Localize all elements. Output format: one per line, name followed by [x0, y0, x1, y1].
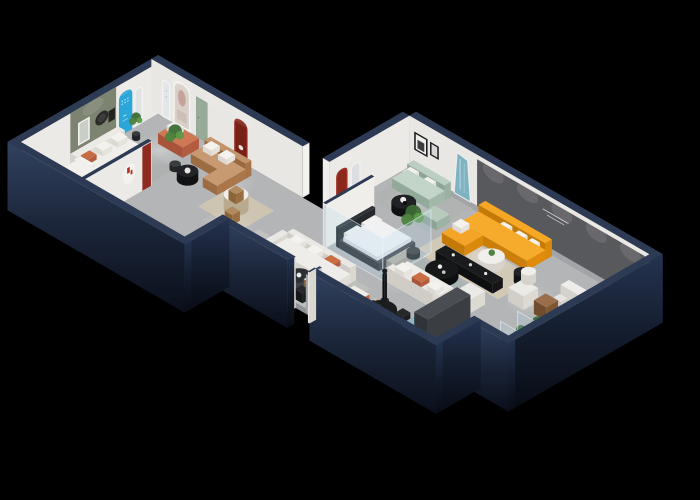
console-decor — [452, 253, 455, 256]
isometric-showroom-floorplan-render — [0, 0, 700, 500]
plant-lw-tall-pot — [169, 160, 180, 167]
table-tray — [185, 168, 191, 174]
partition-lw-decor — [142, 142, 151, 191]
south-doorway-jamb — [308, 271, 310, 323]
plant-nw — [136, 117, 142, 123]
coffee-table-plant — [489, 250, 495, 256]
plant-nw-pot — [132, 131, 140, 136]
side-table-white — [521, 267, 536, 276]
north-wall-decor — [163, 80, 169, 118]
plant-lw-tall — [165, 132, 175, 142]
feature-wall-decor — [459, 159, 461, 190]
mirror-panel — [306, 274, 308, 313]
oval-table-decor — [438, 264, 442, 268]
statue-figure — [382, 268, 387, 273]
statue-figure — [385, 273, 387, 301]
plant-nw — [129, 118, 136, 125]
south-doorway-jamb — [309, 268, 316, 323]
statue-figure — [382, 273, 384, 301]
plant-lw-tall — [176, 131, 184, 139]
south-wall-east — [436, 342, 443, 414]
console-decor — [484, 272, 487, 275]
south-wall-middle — [288, 256, 295, 328]
oval-table-decor — [442, 270, 446, 274]
table-kettle — [403, 201, 407, 205]
console-decor — [469, 263, 472, 266]
feature-wall-decor — [464, 163, 465, 193]
north-wall-decor — [197, 97, 207, 141]
coffee-table-decor — [297, 273, 302, 278]
se-step-wall — [509, 339, 516, 411]
north-wall-structure — [303, 142, 310, 197]
south-wall-left-wing — [185, 240, 192, 312]
floorplan-stage — [0, 0, 700, 500]
